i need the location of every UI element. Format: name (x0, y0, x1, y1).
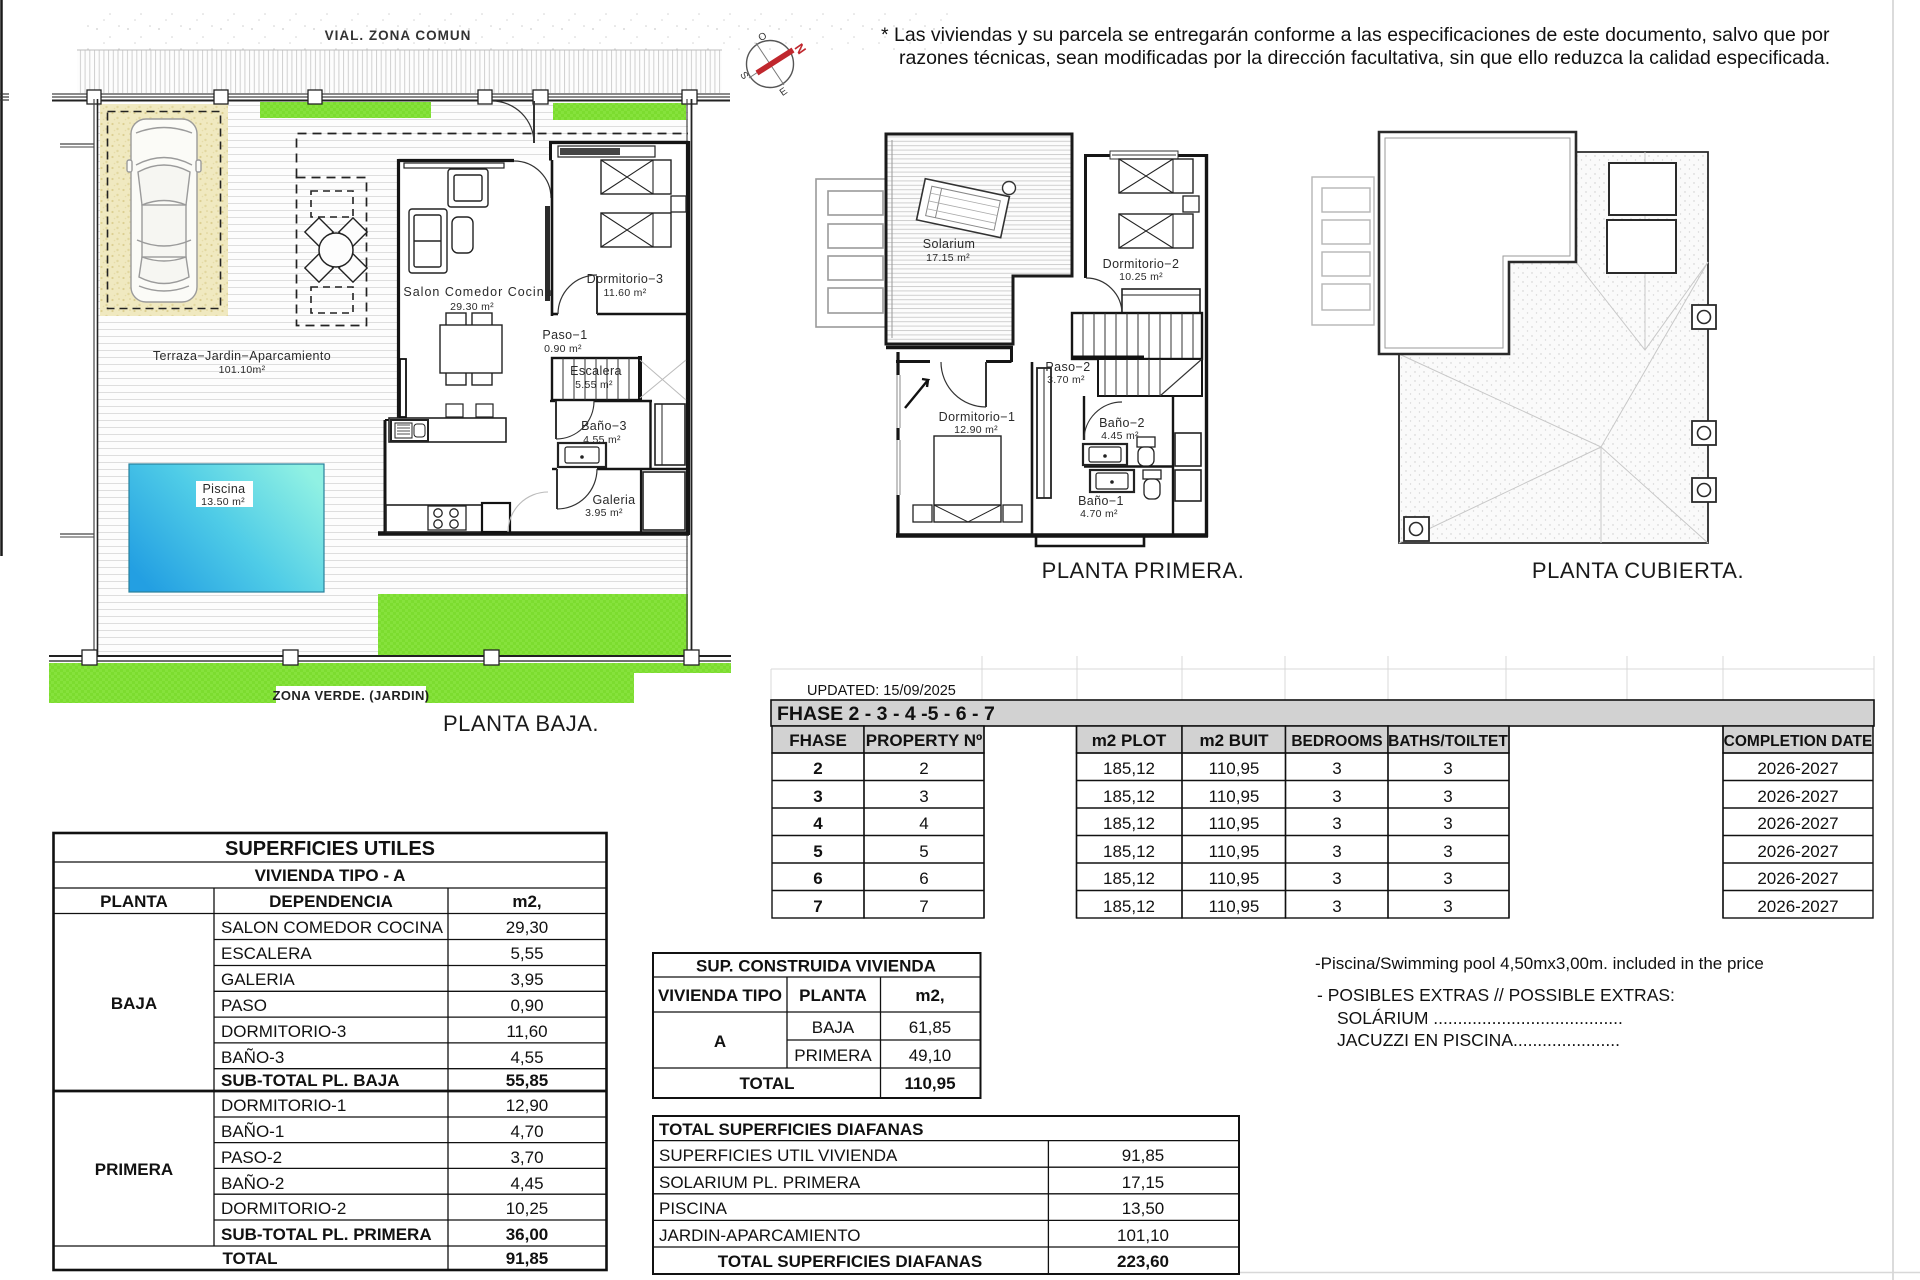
svg-text:PLANTA: PLANTA (100, 892, 168, 911)
svg-text:11.60 m²: 11.60 m² (603, 287, 646, 299)
svg-text:185,12: 185,12 (1103, 759, 1155, 778)
svg-text:5.55 m²: 5.55 m² (575, 379, 613, 391)
svg-text:61,85: 61,85 (909, 1018, 952, 1037)
svg-text:- POSIBLES EXTRAS // POSSIBLE: - POSIBLES EXTRAS // POSSIBLE EXTRAS: (1317, 985, 1675, 1005)
svg-text:110,95: 110,95 (1209, 897, 1260, 916)
svg-text:110,95: 110,95 (1209, 814, 1260, 833)
svg-text:6: 6 (813, 869, 822, 888)
svg-text:101,10: 101,10 (1117, 1226, 1169, 1245)
svg-text:DORMITORIO-1: DORMITORIO-1 (221, 1096, 346, 1115)
svg-text:razones técnicas, sean modific: razones técnicas, sean modificadas por l… (899, 47, 1830, 69)
svg-text:Dormitorio−2: Dormitorio−2 (1103, 257, 1180, 271)
svg-text:ZONA VERDE. (JARDIN): ZONA VERDE. (JARDIN) (272, 688, 429, 703)
svg-text:Paso−2: Paso−2 (1045, 360, 1090, 374)
svg-text:29.30 m²: 29.30 m² (450, 301, 494, 313)
svg-text:4.55 m²: 4.55 m² (583, 434, 621, 446)
svg-text:m2,: m2, (915, 986, 944, 1005)
svg-text:SUB-TOTAL PL. PRIMERA: SUB-TOTAL PL. PRIMERA (221, 1225, 432, 1244)
svg-text:3: 3 (1332, 787, 1341, 806)
svg-text:A: A (714, 1032, 726, 1051)
svg-text:101.10m²: 101.10m² (219, 364, 266, 376)
svg-text:PRIMERA: PRIMERA (794, 1046, 872, 1065)
svg-text:11,60: 11,60 (506, 1022, 547, 1041)
svg-text:3: 3 (1443, 787, 1452, 806)
svg-text:BATHS/TOILTET: BATHS/TOILTET (1388, 733, 1508, 750)
svg-text:0.90 m²: 0.90 m² (544, 343, 582, 355)
svg-text:110,95: 110,95 (1209, 842, 1260, 861)
svg-text:SUP. CONSTRUIDA VIVIENDA: SUP. CONSTRUIDA VIVIENDA (696, 957, 936, 976)
svg-text:185,12: 185,12 (1103, 814, 1155, 833)
svg-text:7: 7 (919, 897, 928, 916)
svg-text:BAJA: BAJA (812, 1018, 855, 1037)
svg-text:17.15 m²: 17.15 m² (926, 252, 970, 264)
svg-text:5,55: 5,55 (510, 944, 543, 963)
svg-text:185,12: 185,12 (1103, 869, 1155, 888)
svg-text:4.45 m²: 4.45 m² (1101, 430, 1139, 442)
svg-text:36,00: 36,00 (506, 1225, 549, 1244)
svg-text:m2,: m2, (512, 892, 541, 911)
svg-text:Dormitorio−1: Dormitorio−1 (939, 410, 1016, 424)
svg-text:SUB-TOTAL PL. BAJA: SUB-TOTAL PL. BAJA (221, 1071, 400, 1090)
svg-text:3: 3 (813, 787, 822, 806)
svg-text:7: 7 (813, 897, 822, 916)
svg-text:TOTAL: TOTAL (222, 1249, 277, 1268)
svg-text:PLANTA BAJA.: PLANTA BAJA. (443, 711, 599, 736)
svg-text:PRIMERA: PRIMERA (95, 1160, 173, 1179)
svg-text:10.25 m²: 10.25 m² (1119, 271, 1163, 283)
svg-text:SOLARIUM PL. PRIMERA: SOLARIUM PL. PRIMERA (659, 1173, 861, 1192)
svg-text:SUPERFICIES UTIL VIVIENDA: SUPERFICIES UTIL VIVIENDA (659, 1146, 898, 1165)
svg-text:GALERIA: GALERIA (221, 970, 295, 989)
svg-text:ESCALERA: ESCALERA (221, 944, 312, 963)
svg-text:PLANTA PRIMERA.: PLANTA PRIMERA. (1042, 558, 1245, 583)
svg-text:3: 3 (1332, 842, 1341, 861)
svg-text:Baño−1: Baño−1 (1078, 494, 1124, 508)
svg-text:FHASE: FHASE (789, 731, 847, 750)
svg-text:3.95 m²: 3.95 m² (585, 507, 623, 519)
svg-text:DORMITORIO-2: DORMITORIO-2 (221, 1199, 346, 1218)
svg-text:* Las viviendas y su parcela s: * Las viviendas y su parcela se entregar… (881, 24, 1830, 46)
svg-text:BAJA: BAJA (111, 994, 157, 1013)
svg-text:VIVIENDA TIPO - A: VIVIENDA TIPO - A (255, 866, 406, 885)
svg-text:185,12: 185,12 (1103, 842, 1155, 861)
svg-text:29,30: 29,30 (506, 918, 549, 937)
svg-text:3: 3 (919, 787, 928, 806)
svg-text:PLANTA: PLANTA (799, 986, 867, 1005)
svg-text:4,45: 4,45 (510, 1174, 543, 1193)
svg-text:UPDATED: 15/09/2025: UPDATED: 15/09/2025 (807, 683, 956, 699)
svg-text:5: 5 (813, 842, 822, 861)
svg-text:JACUZZI EN PISCINA............: JACUZZI EN PISCINA...................... (1337, 1030, 1620, 1050)
svg-text:185,12: 185,12 (1103, 897, 1155, 916)
svg-text:PASO: PASO (221, 996, 267, 1015)
svg-text:TOTAL SUPERFICIES DIAFANAS: TOTAL SUPERFICIES DIAFANAS (718, 1252, 982, 1271)
svg-text:2: 2 (813, 759, 822, 778)
svg-text:PLANTA CUBIERTA.: PLANTA CUBIERTA. (1532, 558, 1744, 583)
svg-text:m2 BUIT: m2 BUIT (1200, 731, 1270, 750)
svg-text:3: 3 (1443, 759, 1452, 778)
svg-text:Terraza−Jardin−Aparcamiento: Terraza−Jardin−Aparcamiento (153, 349, 331, 363)
svg-text:TOTAL: TOTAL (739, 1074, 794, 1093)
svg-text:6: 6 (919, 869, 928, 888)
svg-text:Piscina: Piscina (202, 482, 245, 496)
svg-text:4,70: 4,70 (510, 1122, 543, 1141)
svg-text:3: 3 (1443, 897, 1452, 916)
svg-text:3,70: 3,70 (510, 1148, 543, 1167)
svg-text:49,10: 49,10 (909, 1046, 952, 1065)
svg-text:2026-2027: 2026-2027 (1757, 787, 1838, 806)
svg-text:VIAL. ZONA COMUN: VIAL. ZONA COMUN (325, 28, 472, 43)
svg-text:3: 3 (1443, 842, 1452, 861)
svg-text:BEDROOMS: BEDROOMS (1291, 733, 1382, 750)
svg-text:BAÑO-2: BAÑO-2 (221, 1174, 284, 1193)
svg-text:SOLÁRIUM .....................: SOLÁRIUM ...............................… (1337, 1008, 1623, 1028)
svg-text:91,85: 91,85 (1122, 1146, 1165, 1165)
svg-text:2026-2027: 2026-2027 (1757, 759, 1838, 778)
svg-text:Baño−3: Baño−3 (581, 419, 627, 433)
svg-text:-Piscina/Swimming pool 4,50mx3: -Piscina/Swimming pool 4,50mx3,00m. incl… (1315, 954, 1764, 973)
svg-text:Paso−1: Paso−1 (542, 328, 587, 342)
svg-text:3.70 m²: 3.70 m² (1047, 374, 1085, 386)
svg-text:2: 2 (919, 759, 928, 778)
svg-text:DORMITORIO-3: DORMITORIO-3 (221, 1022, 346, 1041)
svg-text:4,55: 4,55 (510, 1048, 543, 1067)
svg-text:Dormitorio−3: Dormitorio−3 (587, 272, 664, 286)
svg-text:SUPERFICIES UTILES: SUPERFICIES UTILES (225, 838, 435, 860)
svg-text:185,12: 185,12 (1103, 787, 1155, 806)
svg-text:5: 5 (919, 842, 928, 861)
svg-text:Galeria: Galeria (592, 493, 635, 507)
svg-text:110,95: 110,95 (1209, 759, 1260, 778)
svg-text:2026-2027: 2026-2027 (1757, 842, 1838, 861)
svg-text:10,25: 10,25 (506, 1199, 549, 1218)
svg-text:3: 3 (1443, 869, 1452, 888)
svg-text:4: 4 (919, 814, 928, 833)
svg-text:55,85: 55,85 (506, 1071, 549, 1090)
svg-text:3,95: 3,95 (510, 970, 543, 989)
svg-text:2026-2027: 2026-2027 (1757, 814, 1838, 833)
svg-text:17,15: 17,15 (1122, 1173, 1165, 1192)
svg-text:2026-2027: 2026-2027 (1757, 897, 1838, 916)
svg-text:PROPERTY Nº: PROPERTY Nº (866, 731, 982, 750)
svg-text:Baño−2: Baño−2 (1099, 416, 1145, 430)
svg-text:3: 3 (1443, 814, 1452, 833)
svg-text:PASO-2: PASO-2 (221, 1148, 282, 1167)
svg-text:BAÑO-1: BAÑO-1 (221, 1122, 284, 1141)
svg-text:TOTAL SUPERFICIES DIAFANAS: TOTAL SUPERFICIES DIAFANAS (659, 1120, 923, 1139)
svg-text:Escalera: Escalera (570, 364, 622, 378)
svg-text:223,60: 223,60 (1117, 1252, 1169, 1271)
svg-text:BAÑO-3: BAÑO-3 (221, 1048, 284, 1067)
svg-text:3: 3 (1332, 869, 1341, 888)
svg-text:0,90: 0,90 (510, 996, 543, 1015)
svg-text:Solarium: Solarium (923, 237, 976, 251)
svg-text:110,95: 110,95 (1209, 787, 1260, 806)
svg-text:SALON COMEDOR COCINA: SALON COMEDOR COCINA (221, 918, 444, 937)
svg-text:JARDIN-APARCAMIENTO: JARDIN-APARCAMIENTO (659, 1226, 861, 1245)
svg-text:110,95: 110,95 (1209, 869, 1260, 888)
svg-text:FHASE 2 - 3 - 4 -5 - 6 - 7: FHASE 2 - 3 - 4 -5 - 6 - 7 (777, 703, 995, 725)
svg-text:Salon Comedor Cocina: Salon Comedor Cocina (403, 285, 552, 299)
svg-text:PISCINA: PISCINA (659, 1199, 728, 1218)
svg-text:110,95: 110,95 (904, 1074, 955, 1093)
svg-text:3: 3 (1332, 759, 1341, 778)
svg-text:DEPENDENCIA: DEPENDENCIA (269, 892, 393, 911)
svg-text:2026-2027: 2026-2027 (1757, 869, 1838, 888)
svg-text:91,85: 91,85 (506, 1249, 549, 1268)
svg-text:3: 3 (1332, 897, 1341, 916)
svg-text:VIVIENDA TIPO: VIVIENDA TIPO (658, 986, 782, 1005)
svg-text:13,50: 13,50 (1122, 1199, 1165, 1218)
svg-text:COMPLETION DATE: COMPLETION DATE (1724, 733, 1873, 750)
svg-text:3: 3 (1332, 814, 1341, 833)
svg-text:12,90: 12,90 (506, 1096, 549, 1115)
svg-text:4.70 m²: 4.70 m² (1080, 508, 1118, 520)
svg-text:m2 PLOT: m2 PLOT (1092, 731, 1167, 750)
svg-text:12.90 m²: 12.90 m² (954, 424, 998, 436)
svg-text:4: 4 (813, 814, 823, 833)
svg-text:13.50 m²: 13.50 m² (201, 496, 245, 508)
